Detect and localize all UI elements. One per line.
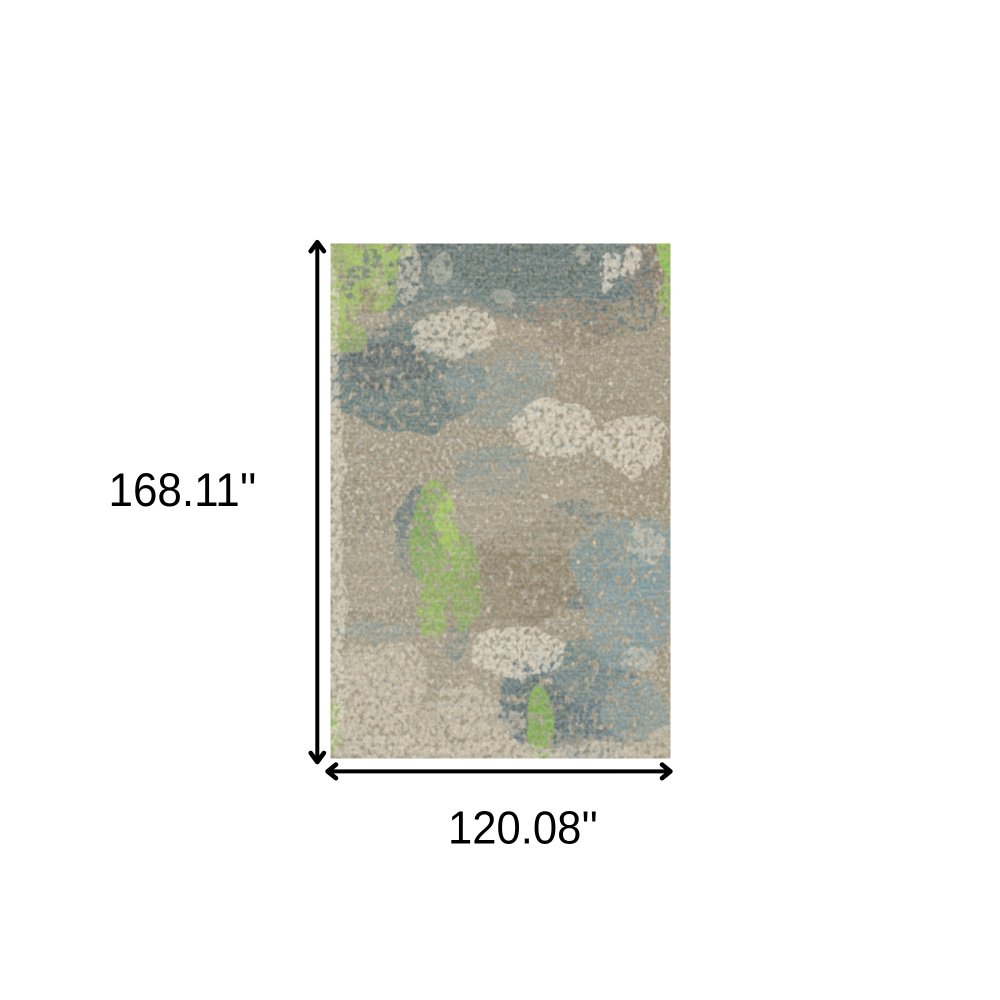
svg-text:168.11'': 168.11'' [109,464,257,517]
svg-text:120.08'': 120.08'' [448,802,598,854]
